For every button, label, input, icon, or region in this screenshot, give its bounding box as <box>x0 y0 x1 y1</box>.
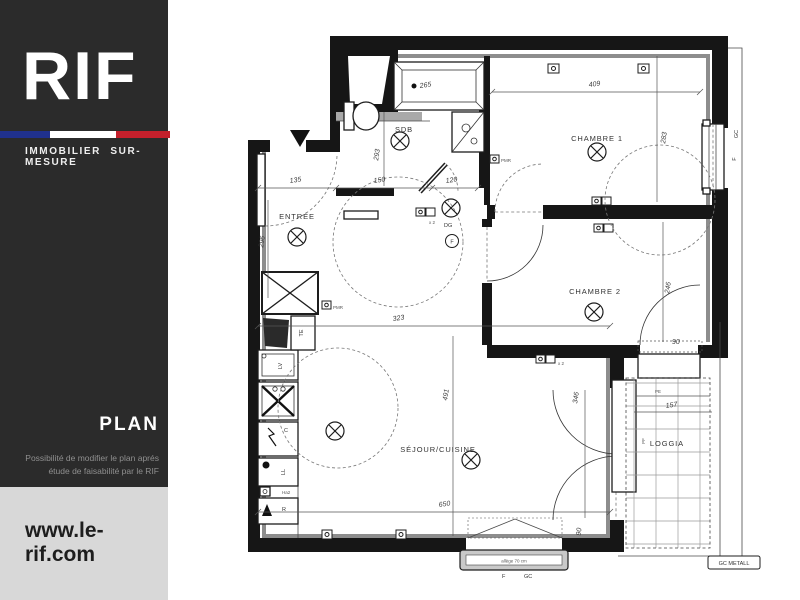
dim-157: 157 <box>665 401 679 410</box>
sejour-window: allège 70 cm <box>460 518 568 570</box>
gc-bottom-label: GC <box>524 574 532 580</box>
chambre1-door <box>495 164 543 212</box>
page: allège 70 cm GC F <box>0 0 800 600</box>
flag-red-stripe <box>116 131 170 138</box>
balcony-door <box>638 285 702 378</box>
pe-label: PE <box>655 389 661 394</box>
dim-650: 650 <box>438 500 451 509</box>
french-flag-icon <box>0 131 170 138</box>
dg-label: DG <box>444 223 452 229</box>
logo-tagline: IMMOBILIER SUR-MESURE <box>25 146 168 168</box>
pf-label: PF <box>641 438 646 444</box>
room-chambre1: CHAMBRE 1 <box>571 134 623 143</box>
ha2-label: Ha2 <box>282 490 291 495</box>
dim-491: 491 <box>442 388 451 401</box>
facade-line: GC F <box>728 48 742 557</box>
bathtub: 265 <box>394 62 484 110</box>
flag-blue-stripe <box>0 131 50 138</box>
chambre1-window <box>702 120 724 194</box>
chambre2-door <box>487 225 543 281</box>
x2a-label: x 2 <box>429 220 436 225</box>
sidebar: RIF IMMOBILIER SUR-MESURE PLAN Possibili… <box>0 0 168 600</box>
dim-409: 409 <box>588 80 601 89</box>
allege-label: allège 70 cm <box>501 559 527 564</box>
plan-note-line1: Possibilité de modifier le plan aprés <box>25 453 159 463</box>
room-sdb: SDB <box>395 125 413 134</box>
washbasin <box>452 112 484 152</box>
dim-135: 135 <box>289 176 302 185</box>
dim-90b: 90 <box>576 527 584 536</box>
gc-metal-label: GC METALL <box>719 561 750 567</box>
dim-346: 346 <box>572 391 581 404</box>
entry-closet: TE <box>262 272 318 350</box>
toilet <box>344 102 379 130</box>
pmr1-label: PMR <box>501 158 512 163</box>
flag-white-stripe <box>50 131 116 138</box>
c-label: C <box>284 428 288 434</box>
dim-120: 120 <box>445 176 458 185</box>
lv-label: LV <box>278 363 284 370</box>
dim-90: 90 <box>672 339 680 346</box>
plan-note-line2: étude de faisabilité par le RIF <box>48 466 159 476</box>
dim-323: 323 <box>392 314 405 323</box>
f-circle-label: F <box>450 240 454 246</box>
ll-label: LL <box>281 469 287 475</box>
room-chambre2: CHAMBRE 2 <box>569 287 621 296</box>
te-label: TE <box>299 329 305 336</box>
website-url: www.le-rif.com <box>25 519 168 567</box>
room-loggia: LOGGIA <box>650 439 684 448</box>
plan-note: Possibilité de modifier le plan aprés ét… <box>9 452 159 478</box>
dim-293: 293 <box>373 148 382 162</box>
room-entree: ENTRÉE <box>279 212 315 221</box>
section-title: PLAN <box>99 414 159 436</box>
room-sejour: SÉJOUR/CUISINE <box>400 445 476 454</box>
x2b-label: x 2 <box>558 361 565 366</box>
kitchen-units: LV C LL Ha2 R <box>258 350 298 538</box>
f-right-label: F <box>732 157 738 161</box>
gc-right-label: GC <box>734 130 740 138</box>
rif-logo: RIF <box>22 42 138 110</box>
pmr2-label: PMR <box>333 305 344 310</box>
f-bottom-label: F <box>502 574 506 580</box>
dim-246: 246 <box>664 281 673 295</box>
french-doors <box>553 380 636 520</box>
dim-283: 283 <box>660 131 669 145</box>
